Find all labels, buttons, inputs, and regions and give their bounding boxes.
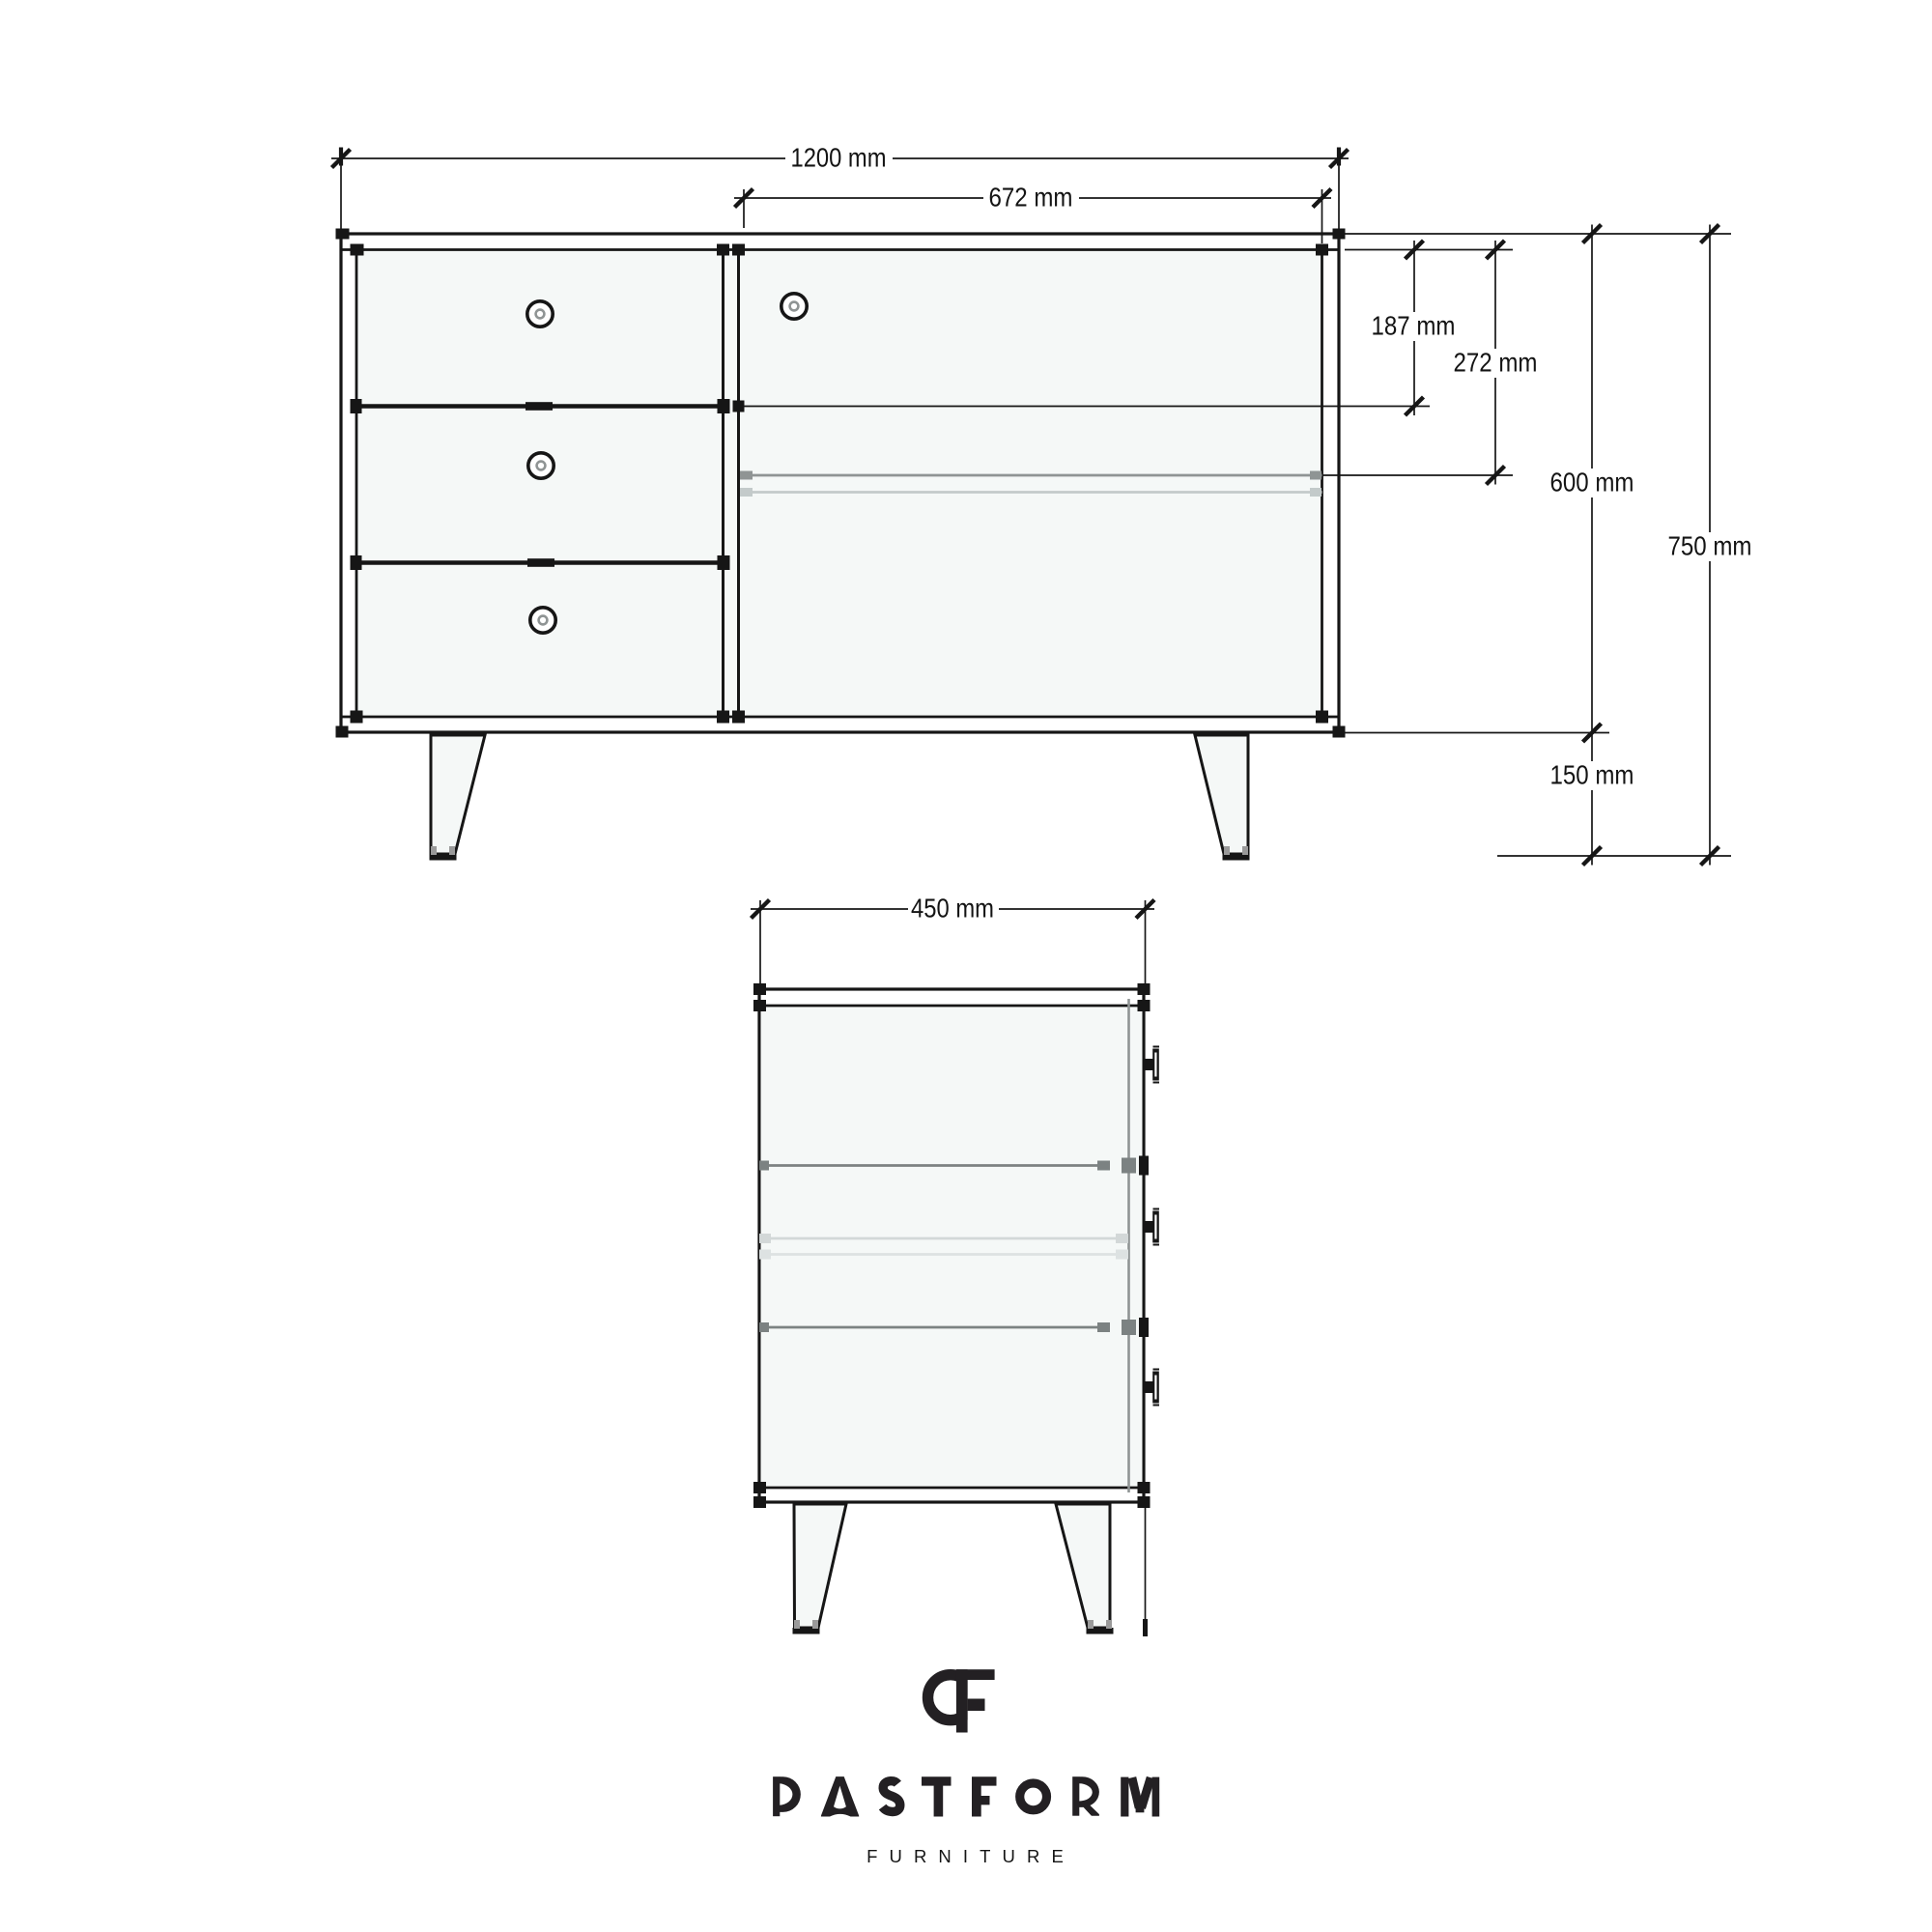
svg-text:672 mm: 672 mm	[989, 182, 1073, 212]
svg-text:450 mm: 450 mm	[911, 893, 994, 923]
svg-text:750 mm: 750 mm	[1668, 530, 1752, 560]
svg-text:187 mm: 187 mm	[1372, 310, 1456, 340]
svg-text:272 mm: 272 mm	[1454, 347, 1538, 377]
svg-text:600 mm: 600 mm	[1550, 467, 1634, 497]
svg-text:150 mm: 150 mm	[1550, 759, 1634, 789]
svg-text:1200 mm: 1200 mm	[791, 142, 887, 172]
svg-text:FURNITURE: FURNITURE	[867, 1846, 1075, 1866]
